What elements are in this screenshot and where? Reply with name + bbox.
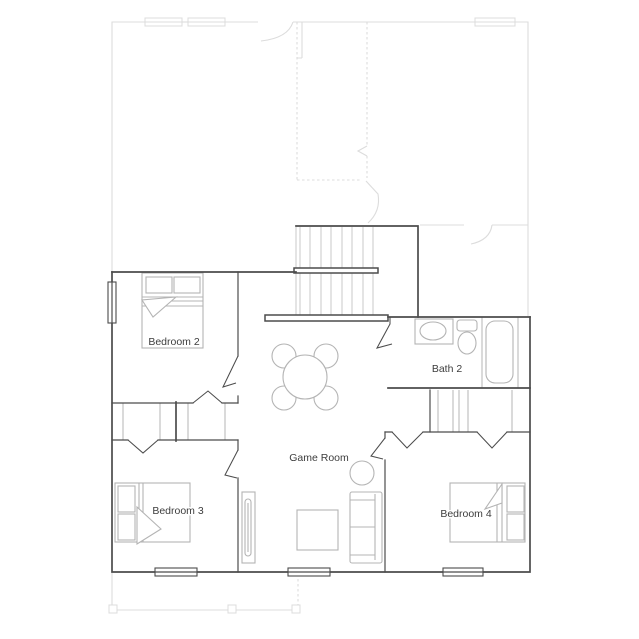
toilet-bowl [458, 332, 476, 354]
stair-landing-edge [265, 315, 388, 321]
table-top [283, 355, 327, 399]
closet-door [477, 432, 507, 448]
staircase [265, 227, 388, 321]
stair-handrail [294, 268, 378, 273]
closet-door [193, 391, 222, 403]
porch-outline [109, 572, 300, 613]
sink-basin [420, 322, 446, 340]
window [108, 282, 116, 323]
bathtub [486, 321, 513, 383]
sofa [350, 492, 382, 563]
closet-door [392, 432, 423, 448]
bedroom3-door [225, 450, 238, 478]
side-table [350, 461, 374, 485]
blanket-fold [485, 484, 502, 509]
room-label-gameroom: Game Room [289, 452, 349, 464]
ghost-window [188, 18, 225, 26]
ghost-window [475, 18, 515, 26]
room-label-bedroom2: Bedroom 2 [148, 336, 200, 348]
porch-post [228, 605, 236, 613]
window [443, 568, 483, 576]
floor-plan: Bedroom 2 Bedroom 3 Bedroom 4 Bath 2 Gam… [0, 0, 639, 639]
pillow [507, 486, 524, 512]
porch-post [292, 605, 300, 613]
toilet [457, 320, 477, 354]
window [155, 568, 197, 576]
pillow [146, 277, 172, 293]
room-label-bedroom4: Bedroom 4 [440, 508, 492, 520]
round-table-with-chairs [272, 344, 338, 410]
window [288, 568, 330, 576]
room-label-bedroom3: Bedroom 3 [152, 505, 204, 517]
pillow [118, 514, 135, 540]
bedroom2-door [223, 356, 238, 387]
ghost-window [145, 18, 182, 26]
sink-vanity [415, 319, 453, 344]
pillow [507, 514, 524, 540]
console-table [242, 492, 255, 563]
windows [108, 282, 483, 576]
porch-post [109, 605, 117, 613]
ottoman-table [297, 510, 338, 550]
bedroom4-door [371, 438, 385, 459]
room-label-bath2: Bath 2 [432, 363, 463, 375]
toilet-tank [457, 320, 477, 331]
pillow [174, 277, 200, 293]
closet-door [128, 440, 158, 453]
pillow [118, 486, 135, 512]
blanket-fold [142, 297, 176, 317]
floor-plan-canvas: Bedroom 2 Bedroom 3 Bedroom 4 Bath 2 Gam… [0, 0, 639, 639]
